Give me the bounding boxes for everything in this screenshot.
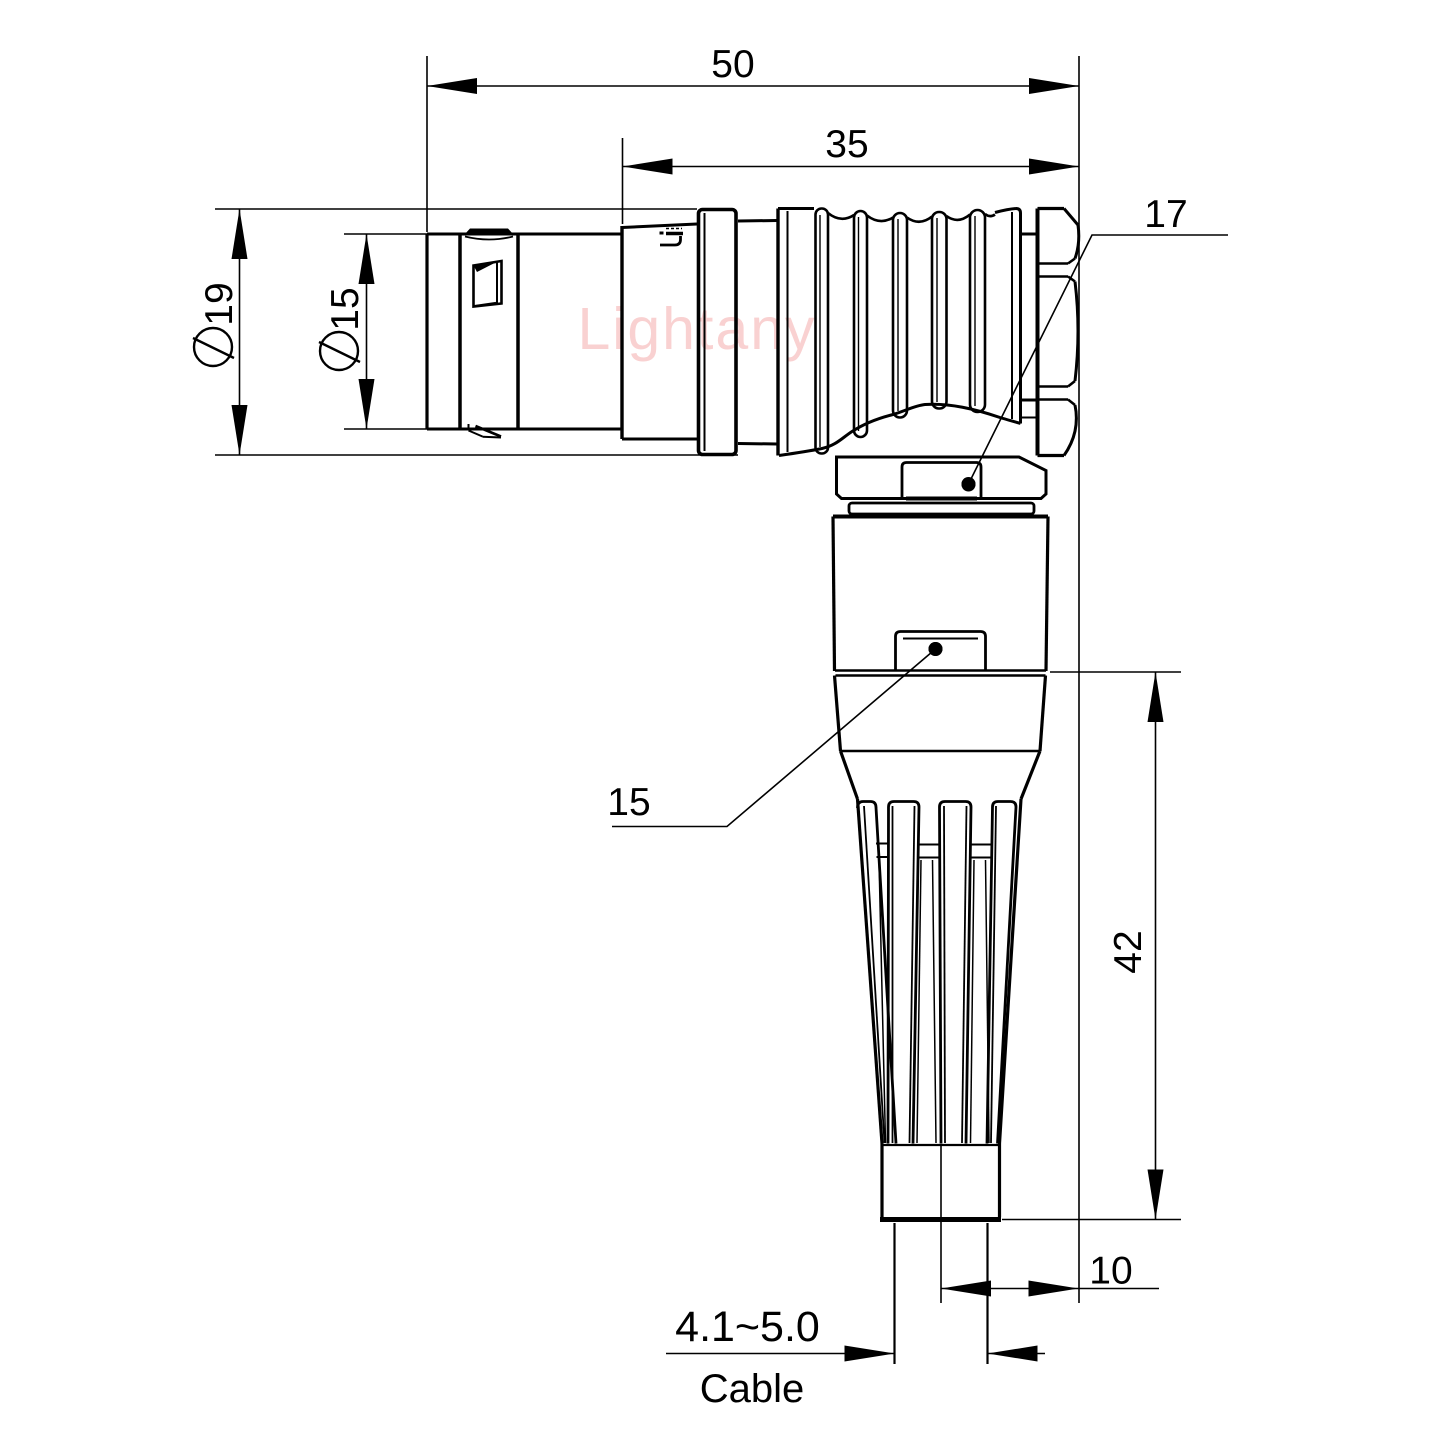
- svg-text:10: 10: [1089, 1250, 1132, 1293]
- svg-text:15: 15: [324, 287, 367, 330]
- svg-text:19: 19: [198, 282, 241, 325]
- svg-text:4.1~5.0: 4.1~5.0: [675, 1303, 820, 1351]
- svg-text:35: 35: [825, 123, 868, 166]
- svg-text:42: 42: [1107, 930, 1150, 973]
- svg-text:15: 15: [607, 781, 650, 824]
- svg-text:Cable: Cable: [700, 1367, 805, 1411]
- svg-text:50: 50: [711, 43, 754, 86]
- svg-text:17: 17: [1144, 193, 1187, 236]
